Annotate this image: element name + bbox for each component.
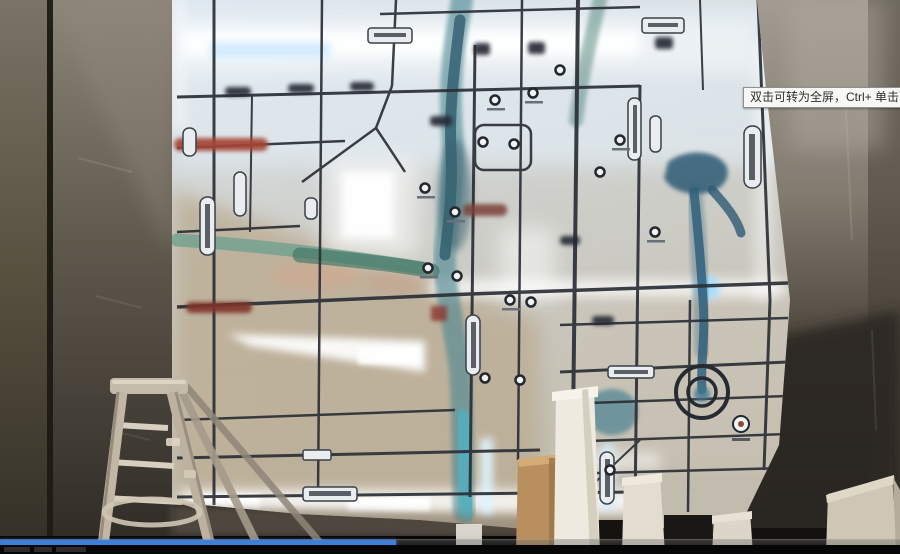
fullscreen-tooltip-text: 双击可转为全屏，Ctrl+ 单击可转为 xyxy=(750,90,900,104)
video-frame-photo xyxy=(0,0,900,554)
player-control-bar[interactable] xyxy=(0,545,900,554)
control-bar-artifact xyxy=(4,547,30,552)
tall-white-pillar xyxy=(552,386,600,554)
illuminated-map-board xyxy=(172,0,792,554)
video-player-viewport[interactable]: 双击可转为全屏，Ctrl+ 单击可转为 xyxy=(0,0,900,554)
control-bar-artifact xyxy=(56,547,86,552)
fullscreen-tooltip: 双击可转为全屏，Ctrl+ 单击可转为 xyxy=(743,87,900,108)
control-bar-artifact xyxy=(34,547,52,552)
left-wall xyxy=(0,0,174,554)
camera-glare-spot xyxy=(342,172,394,238)
